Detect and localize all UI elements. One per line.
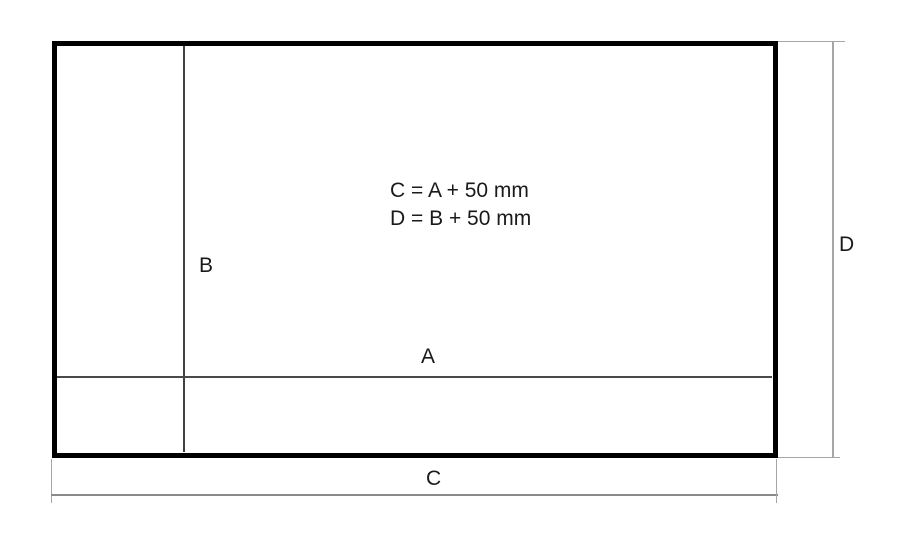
dimension-line-d xyxy=(832,41,834,457)
formula-annotation: C = A + 50 mm D = B + 50 mm xyxy=(390,177,531,233)
label-outer-height-d: D xyxy=(839,234,854,255)
dimension-diagram-canvas: C = A + 50 mm D = B + 50 mm B A D C xyxy=(0,0,900,546)
inner-vertical-line-b xyxy=(183,46,185,452)
extension-line-c-right xyxy=(776,459,777,503)
extension-line-c-left xyxy=(51,459,52,503)
inner-horizontal-line-a xyxy=(57,376,772,378)
formula-line-1: C = A + 50 mm xyxy=(390,177,531,205)
extension-line-d-top xyxy=(778,41,845,42)
outer-rectangle-outline xyxy=(52,41,778,458)
label-inner-height-b: B xyxy=(199,255,213,276)
label-outer-width-c: C xyxy=(426,468,441,489)
formula-line-2: D = B + 50 mm xyxy=(390,205,531,233)
extension-line-d-bottom xyxy=(778,457,840,458)
label-inner-width-a: A xyxy=(421,346,435,367)
dimension-line-c xyxy=(51,494,778,496)
